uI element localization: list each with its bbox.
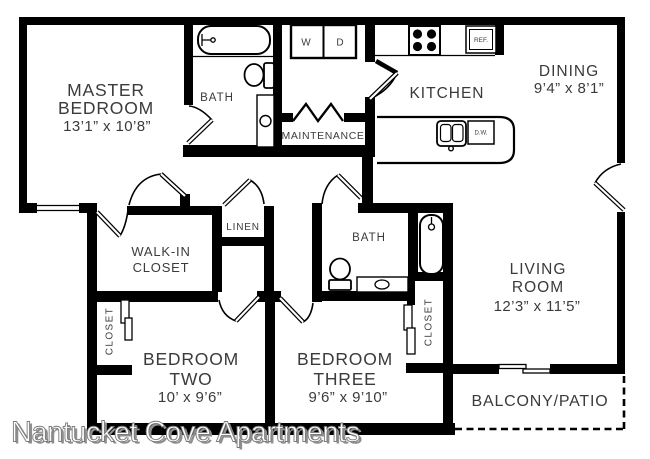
- bath-top-label: BATH: [200, 92, 234, 104]
- wall: [282, 113, 293, 122]
- walkin-closet-label: WALK-IN: [131, 244, 190, 259]
- bathtub-top-icon: [193, 26, 273, 57]
- wall: [19, 17, 27, 213]
- living-room-label: LIVING: [510, 261, 567, 278]
- dishwasher-icon: D.W.: [468, 121, 494, 144]
- wall: [443, 203, 453, 433]
- master-bedroom-dims: 13’1” x 10’8”: [63, 118, 151, 135]
- wall: [95, 291, 218, 302]
- door-master: [129, 174, 185, 205]
- dining-dims: 9’4” x 8’1”: [534, 80, 604, 97]
- watermark-text: Nantucket Cove Apartments: [11, 417, 360, 449]
- bedroom-three-label: BEDROOM: [297, 349, 393, 369]
- closet-doors-right: [404, 305, 415, 354]
- closet-left-label: CLOSET: [105, 307, 116, 355]
- bathtub-hall-icon: [420, 215, 443, 274]
- wall: [264, 206, 274, 292]
- bedroom-three-label: THREE: [313, 369, 376, 389]
- wall: [443, 364, 499, 374]
- dishwasher-label: D.W.: [475, 131, 488, 137]
- wall: [312, 203, 322, 302]
- wall: [215, 237, 274, 246]
- door-bedroom-two: [219, 297, 259, 321]
- wall: [265, 292, 275, 435]
- door-entry: [595, 164, 624, 210]
- kitchen-label: KITCHEN: [409, 85, 484, 102]
- wall: [408, 213, 418, 277]
- wall: [365, 17, 375, 62]
- wall: [617, 17, 625, 163]
- toilet-hall-icon: [329, 259, 351, 291]
- maintenance-label: MAINTENANCE: [281, 130, 364, 142]
- master-bedroom-label: MASTER: [67, 80, 145, 100]
- closet-doors-left: [121, 300, 132, 340]
- dining-label: DINING: [539, 63, 599, 80]
- wall: [87, 365, 132, 375]
- bedroom-two-dims: 10’ x 9’6”: [158, 389, 222, 406]
- bedroom-two-label: BEDROOM: [143, 349, 239, 369]
- wall: [212, 206, 222, 292]
- closet-right-label: CLOSET: [424, 298, 435, 346]
- wall: [406, 363, 445, 373]
- door-walkin-closet: [97, 210, 128, 236]
- refrigerator-icon: REF.: [466, 26, 496, 53]
- floorplan-drawing: W D REF. D.W. MASTER: [0, 0, 650, 459]
- wall: [87, 203, 97, 435]
- door-maintenance-bifold: [293, 104, 343, 121]
- master-bedroom-label: BEDROOM: [58, 98, 154, 118]
- door-kitchen: [370, 61, 397, 99]
- bedroom-three-dims: 9’6” x 9’10”: [308, 389, 387, 406]
- washer-label: W: [301, 38, 311, 49]
- kitchen-sink-icon: [437, 121, 466, 151]
- wall: [184, 17, 193, 105]
- door-linen: [224, 180, 264, 205]
- vanity-hall-icon: [357, 277, 408, 292]
- wall: [19, 203, 37, 213]
- door-bath-hall: [322, 175, 361, 204]
- living-room-label: ROOM: [512, 279, 564, 296]
- wall: [362, 157, 373, 205]
- walkin-closet-label: CLOSET: [133, 260, 190, 275]
- wall: [550, 364, 625, 374]
- door-bath-top: [188, 106, 212, 143]
- room-labels: MASTER BEDROOM 13’1” x 10’8” BATH MAINTE…: [58, 63, 608, 410]
- watermark: Nantucket Cove Apartments Nantucket Cove…: [11, 417, 362, 451]
- wall: [617, 212, 625, 374]
- bedroom-two-label: TWO: [169, 369, 212, 389]
- washer-dryer-icon: W D: [291, 25, 356, 58]
- linen-label: LINEN: [226, 222, 259, 233]
- vanity-top-icon: [257, 95, 274, 147]
- wall: [344, 113, 365, 122]
- window-master: [37, 206, 79, 211]
- door-bedroom-three: [280, 298, 313, 322]
- wall: [365, 97, 375, 157]
- toilet-top-icon: [245, 63, 275, 88]
- wall: [127, 206, 220, 215]
- living-room-dims: 12’3” x 11’5”: [494, 298, 581, 315]
- balcony-label: BALCONY/PATIO: [472, 393, 609, 410]
- sliding-door-living: [499, 365, 550, 374]
- bath-hall-label: BATH: [352, 232, 386, 244]
- floorplan-page: W D REF. D.W. MASTER: [0, 0, 650, 459]
- dryer-label: D: [336, 38, 343, 49]
- refrigerator-label: REF.: [474, 37, 488, 44]
